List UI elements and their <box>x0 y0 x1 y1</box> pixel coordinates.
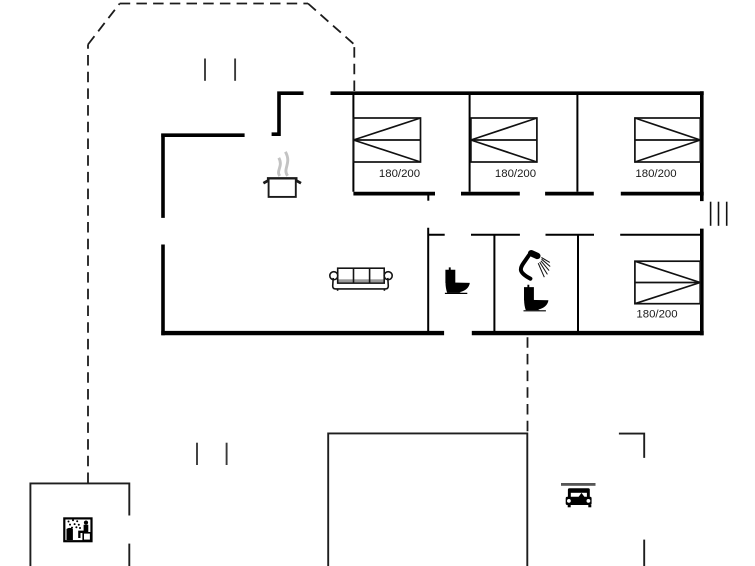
svg-text:180/200: 180/200 <box>636 308 677 320</box>
svg-text:180/200: 180/200 <box>379 168 420 180</box>
svg-text:180/200: 180/200 <box>495 168 536 180</box>
svg-text:180/200: 180/200 <box>635 168 676 180</box>
